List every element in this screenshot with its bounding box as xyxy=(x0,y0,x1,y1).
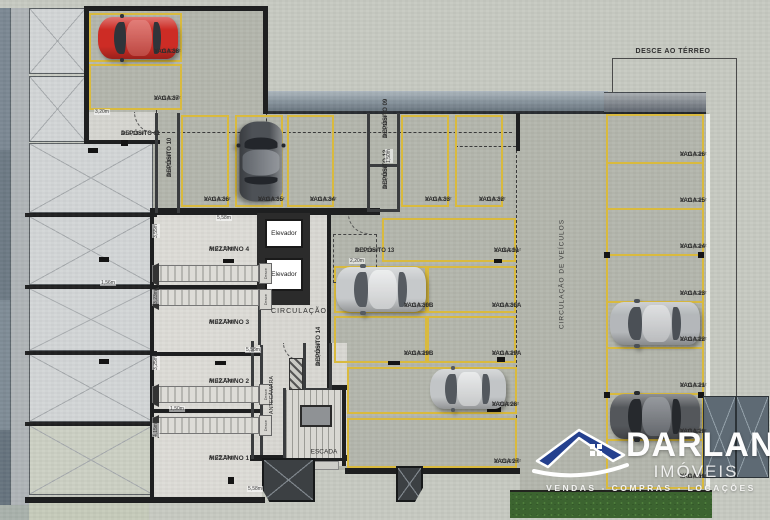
antechamber-label: ANTECÂMARA xyxy=(269,376,275,414)
elevator-label: Elevador xyxy=(271,230,297,237)
wall-dep09-12 xyxy=(367,209,400,212)
column-marker xyxy=(223,259,234,263)
wall-dep10 xyxy=(155,113,158,213)
left-inner-strip xyxy=(10,8,29,505)
stairs-label: ESCADA xyxy=(311,448,338,455)
stall-vaga37 xyxy=(89,64,182,110)
logo-house-icon xyxy=(532,424,630,478)
elevator-label: Elevador xyxy=(271,271,297,278)
left-edge-strip xyxy=(0,8,10,150)
hatched-panel xyxy=(29,288,153,351)
wall-lane-right-stub xyxy=(516,113,520,151)
column-marker xyxy=(604,252,610,258)
panel-divider xyxy=(25,285,157,289)
panel-divider xyxy=(25,422,157,426)
retaining-wall-band xyxy=(268,91,608,114)
vehicle-lane-label: CIRCULAÇÃO DE VEÍCULOS xyxy=(558,219,565,329)
ramp-edge xyxy=(604,92,706,114)
wall xyxy=(263,6,268,114)
hatched-panel xyxy=(29,354,153,422)
wall-dep14 xyxy=(303,343,306,390)
stair-landing: Desce xyxy=(259,263,272,284)
dimension-label: 3,23m xyxy=(152,290,160,304)
hatched-panel xyxy=(29,425,153,495)
dimension-label: 5,58m xyxy=(247,486,263,492)
stall-vaga34 xyxy=(287,115,334,207)
dimension-label: 4,15m xyxy=(152,423,160,437)
dimension-label: 1,56m xyxy=(100,280,116,286)
column-marker xyxy=(388,361,400,365)
hatched-panel xyxy=(29,8,86,74)
dimension-label: 3,55m xyxy=(152,224,160,238)
wall-parking-bottom xyxy=(345,468,520,474)
stair-landing: Desce xyxy=(259,289,272,310)
wall-dep09-12 xyxy=(367,113,370,212)
stair-run xyxy=(152,265,259,282)
hatched-panel xyxy=(29,76,86,142)
stall-vaga27 xyxy=(347,418,517,468)
elevator-cab-1: Elevador xyxy=(265,219,303,248)
duct-shaft xyxy=(289,358,303,390)
left-edge-strip xyxy=(0,300,10,430)
wall-mezz-divider xyxy=(150,409,262,413)
column-marker xyxy=(99,359,109,364)
dimension-label: 3,25m xyxy=(152,356,160,370)
pillar xyxy=(262,458,315,502)
wall-bottom xyxy=(25,497,265,503)
dimension-label: 3,20m xyxy=(94,109,110,115)
floor-plan: Elevador Elevador Desce Desce Desce Desc… xyxy=(0,0,770,520)
hatched-panel xyxy=(29,143,153,213)
circulation-label: CIRCULAÇÃO xyxy=(271,308,327,316)
wall xyxy=(84,6,268,11)
logo-segment-text: IMÓVEIS xyxy=(646,462,746,482)
lawn-strip xyxy=(0,505,29,520)
dimension-label: 1,50m xyxy=(385,149,393,163)
wall-dep10 xyxy=(177,113,180,213)
left-edge-strip xyxy=(0,430,10,505)
stairwell-landing xyxy=(300,405,332,427)
hatched-panel xyxy=(29,216,153,285)
stall-vaga36 xyxy=(181,115,229,207)
stall-vaga31 xyxy=(382,218,516,262)
column-marker xyxy=(215,361,226,365)
ramp-label: DESCE AO TÉRREO xyxy=(636,48,711,56)
stair-direction-label: Desce xyxy=(263,420,268,431)
lawn-strip xyxy=(29,503,149,520)
dimension-label: 5,58m xyxy=(216,215,232,221)
panel-divider xyxy=(25,351,157,355)
stall-divider xyxy=(608,162,702,164)
column-marker xyxy=(88,148,98,153)
stall-divider xyxy=(608,254,702,256)
car-dark-vaga35 xyxy=(240,122,283,202)
stair-run xyxy=(152,289,259,306)
stair-run xyxy=(152,386,259,403)
dimension-label: 2,20m xyxy=(349,258,365,264)
leader-line xyxy=(612,58,613,93)
stair-direction-label: Desce xyxy=(263,268,268,279)
stall-divider xyxy=(608,347,702,349)
wall xyxy=(84,6,89,144)
stall-vaga32 xyxy=(455,115,503,207)
dimension-label: 5,58m xyxy=(245,347,261,353)
stair-direction-label: Desce xyxy=(263,294,268,305)
column-marker xyxy=(121,140,128,146)
column-marker xyxy=(99,257,109,262)
logo: DARLAN IMÓVEIS VENDAS - COMPRAS - LOCAÇÕ… xyxy=(528,420,768,498)
column-marker xyxy=(497,357,505,362)
stair-direction-label: Desce xyxy=(263,389,268,400)
dimension-label: 1,50m xyxy=(169,406,185,412)
stair-run xyxy=(152,417,259,434)
stair-landing: Desce xyxy=(259,415,272,436)
ramp-rail-line xyxy=(736,58,737,398)
column-marker xyxy=(494,259,502,263)
wall-dep14 xyxy=(329,343,332,390)
leader-line xyxy=(612,58,736,59)
logo-tagline-text: VENDAS - COMPRAS - LOCAÇÕES xyxy=(542,483,760,493)
column-marker xyxy=(698,252,704,258)
logo-brand-text: DARLAN xyxy=(626,426,766,465)
stall-vaga33 xyxy=(401,115,449,207)
stall-divider xyxy=(608,208,702,210)
pillar xyxy=(396,466,423,502)
panel-divider xyxy=(25,213,157,217)
column-marker xyxy=(228,477,234,484)
left-edge-strip xyxy=(0,150,10,300)
wall-dep09-12 xyxy=(397,113,400,212)
